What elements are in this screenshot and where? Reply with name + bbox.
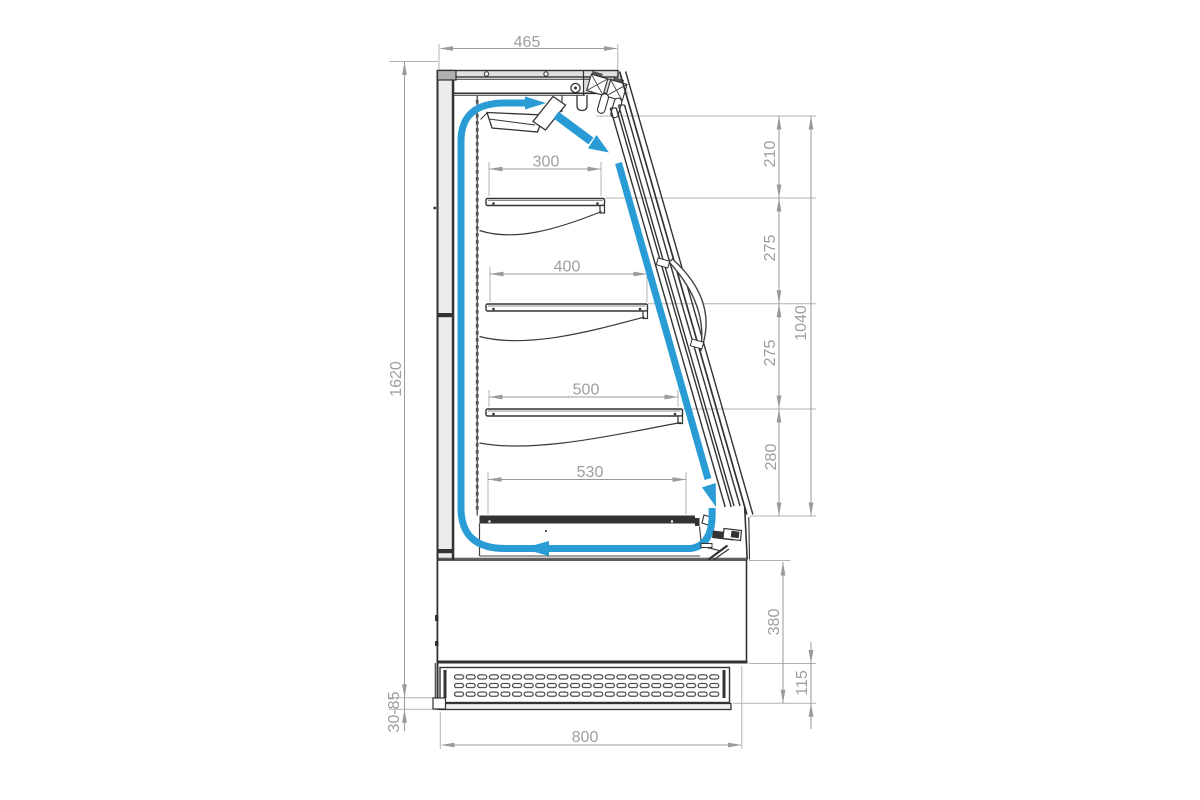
svg-text:275: 275 [762, 340, 779, 367]
svg-text:30-85: 30-85 [386, 691, 403, 732]
svg-text:280: 280 [763, 444, 780, 471]
svg-text:1620: 1620 [388, 361, 405, 397]
svg-text:275: 275 [762, 235, 779, 262]
svg-text:300: 300 [533, 154, 560, 171]
svg-text:530: 530 [577, 464, 604, 481]
svg-text:800: 800 [572, 729, 599, 746]
svg-text:380: 380 [766, 609, 783, 636]
svg-text:1040: 1040 [793, 305, 810, 341]
svg-text:465: 465 [514, 34, 541, 51]
svg-text:210: 210 [762, 141, 779, 168]
svg-text:500: 500 [573, 382, 600, 399]
svg-text:115: 115 [794, 670, 811, 696]
svg-text:400: 400 [554, 259, 581, 276]
